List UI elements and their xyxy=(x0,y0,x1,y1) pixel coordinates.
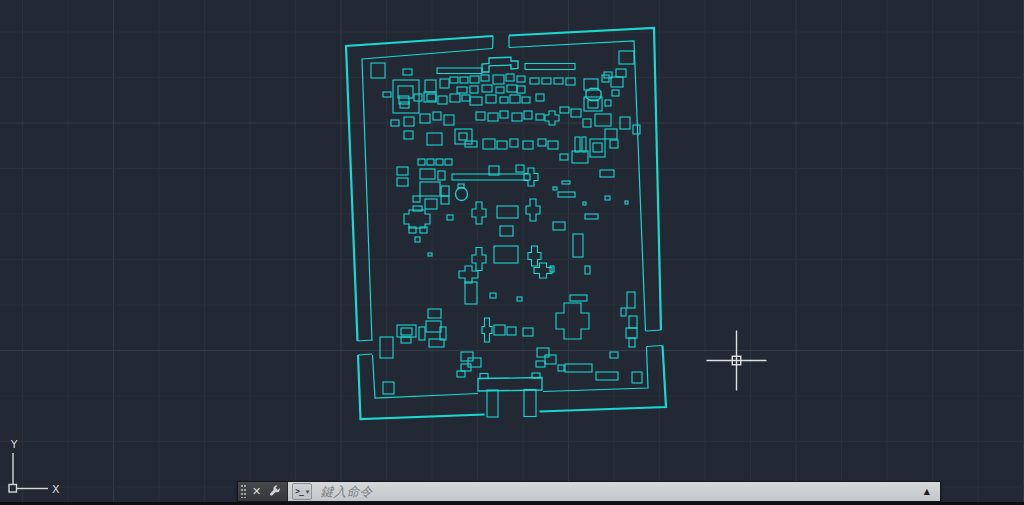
building xyxy=(483,139,495,149)
building xyxy=(459,133,467,140)
building xyxy=(517,297,522,301)
wall-cap xyxy=(358,340,372,341)
building xyxy=(627,292,635,308)
building xyxy=(558,192,575,197)
building xyxy=(496,87,504,93)
building xyxy=(585,266,590,274)
building xyxy=(371,63,385,78)
building xyxy=(438,96,447,104)
pavilion-building xyxy=(404,210,430,228)
building xyxy=(426,321,441,332)
building xyxy=(542,78,551,84)
building-outline xyxy=(482,57,518,72)
building xyxy=(554,78,563,84)
building xyxy=(482,85,492,92)
building xyxy=(397,178,408,186)
building xyxy=(427,159,434,165)
building xyxy=(629,316,637,328)
pavilion-building xyxy=(482,318,492,342)
crosshair-cursor xyxy=(707,331,767,391)
building xyxy=(605,196,610,200)
building xyxy=(590,139,605,157)
building xyxy=(512,113,522,121)
outer-wall xyxy=(358,355,485,419)
building xyxy=(500,97,508,103)
building xyxy=(428,309,441,318)
building xyxy=(470,97,482,105)
ucs-y-label: Y xyxy=(10,438,18,451)
command-prompt-icon[interactable]: >_ ▾ xyxy=(292,483,312,500)
building xyxy=(573,234,583,257)
building xyxy=(403,69,412,75)
building xyxy=(517,86,525,93)
building xyxy=(633,125,640,134)
close-icon[interactable]: ✕ xyxy=(250,482,263,501)
application-window: YX ✕ >_ ▾ ▲ xyxy=(0,0,1024,505)
building xyxy=(570,295,587,301)
building xyxy=(548,141,558,149)
drag-grip-icon[interactable] xyxy=(241,485,246,498)
building xyxy=(497,206,518,218)
building xyxy=(545,355,556,364)
command-bar-left-section: ✕ xyxy=(238,482,288,501)
building xyxy=(595,114,611,126)
pavilion-building xyxy=(526,199,540,221)
building xyxy=(525,64,575,70)
prompt-glyph: >_ xyxy=(295,487,303,496)
building xyxy=(565,364,592,372)
building xyxy=(383,382,394,394)
building xyxy=(566,78,575,85)
building xyxy=(524,390,536,417)
pavilion-building xyxy=(459,266,478,283)
ucs-x-label: X xyxy=(52,483,60,496)
building xyxy=(493,75,504,84)
command-input-field[interactable]: >_ ▾ ▲ xyxy=(288,482,940,501)
building xyxy=(401,337,411,343)
building xyxy=(536,94,544,101)
building xyxy=(510,95,520,103)
building xyxy=(427,133,442,145)
building xyxy=(440,79,449,88)
building xyxy=(536,361,545,367)
building xyxy=(626,328,637,338)
building xyxy=(538,139,546,146)
building xyxy=(588,100,598,108)
building xyxy=(612,90,619,96)
building xyxy=(404,117,414,126)
building xyxy=(404,131,413,139)
building xyxy=(523,328,533,336)
building xyxy=(611,77,623,87)
building xyxy=(490,293,496,298)
building xyxy=(621,308,626,316)
building xyxy=(507,327,516,335)
building xyxy=(425,80,436,92)
building xyxy=(462,95,470,101)
building xyxy=(419,327,425,340)
pavilion-building xyxy=(524,168,538,186)
building xyxy=(400,102,409,108)
building xyxy=(437,68,482,74)
outer-wall xyxy=(509,28,661,330)
building-outline xyxy=(456,188,468,201)
building xyxy=(530,78,539,84)
building xyxy=(470,86,478,93)
building xyxy=(497,141,507,149)
building xyxy=(447,215,453,220)
building xyxy=(457,87,467,93)
building xyxy=(415,237,420,242)
building xyxy=(619,51,634,64)
building xyxy=(524,111,532,119)
building xyxy=(487,390,498,417)
building xyxy=(632,372,642,383)
pavilion-building xyxy=(472,202,486,224)
building xyxy=(560,107,569,113)
building xyxy=(494,325,505,335)
building xyxy=(445,159,452,165)
building xyxy=(488,113,498,121)
cad-drawing xyxy=(346,28,666,419)
pavilion-building xyxy=(556,303,589,339)
building xyxy=(629,338,635,347)
building xyxy=(418,159,425,165)
building xyxy=(457,371,465,377)
building xyxy=(517,76,525,82)
building xyxy=(625,201,628,204)
building xyxy=(486,95,496,103)
building xyxy=(441,196,449,204)
building xyxy=(553,222,565,230)
building xyxy=(537,348,549,357)
building xyxy=(572,151,588,163)
building xyxy=(600,170,614,177)
building xyxy=(436,159,443,165)
building xyxy=(583,202,586,205)
building xyxy=(468,358,481,367)
wall-cap xyxy=(646,346,662,347)
wall-cap xyxy=(646,330,661,331)
command-bar: ✕ >_ ▾ ▲ xyxy=(237,481,941,502)
inner-wall xyxy=(543,347,648,392)
building xyxy=(605,100,611,106)
building xyxy=(523,141,533,149)
building xyxy=(414,94,422,101)
ucs-origin-box xyxy=(9,485,17,493)
building xyxy=(507,85,517,92)
building xyxy=(401,328,412,335)
building xyxy=(596,372,618,380)
viewport[interactable]: YX xyxy=(0,0,1024,505)
command-input[interactable] xyxy=(312,482,917,501)
building xyxy=(500,111,508,118)
building xyxy=(500,226,513,236)
building xyxy=(575,137,580,152)
building xyxy=(465,282,477,304)
wrench-icon[interactable] xyxy=(266,485,283,498)
building xyxy=(558,365,564,371)
chevron-down-icon: ▾ xyxy=(306,488,310,496)
building xyxy=(428,253,432,256)
building xyxy=(413,196,420,202)
building xyxy=(536,114,544,120)
building xyxy=(420,169,435,179)
building xyxy=(420,182,440,196)
building xyxy=(450,94,460,102)
expand-history-icon[interactable]: ▲ xyxy=(918,487,936,496)
building xyxy=(585,214,598,219)
building xyxy=(425,199,437,209)
building xyxy=(433,112,441,120)
wall-cap xyxy=(358,354,372,355)
building xyxy=(582,137,586,152)
building xyxy=(605,129,617,139)
building xyxy=(494,246,518,263)
pavilion-building xyxy=(534,263,552,278)
building xyxy=(593,143,602,152)
grid xyxy=(0,0,1024,505)
building xyxy=(420,114,430,123)
building xyxy=(441,186,449,196)
building xyxy=(560,154,568,160)
building xyxy=(553,187,557,190)
building xyxy=(510,139,518,147)
building xyxy=(571,109,581,117)
building xyxy=(461,352,473,361)
building xyxy=(455,129,472,144)
building xyxy=(438,171,445,180)
building xyxy=(616,69,626,77)
